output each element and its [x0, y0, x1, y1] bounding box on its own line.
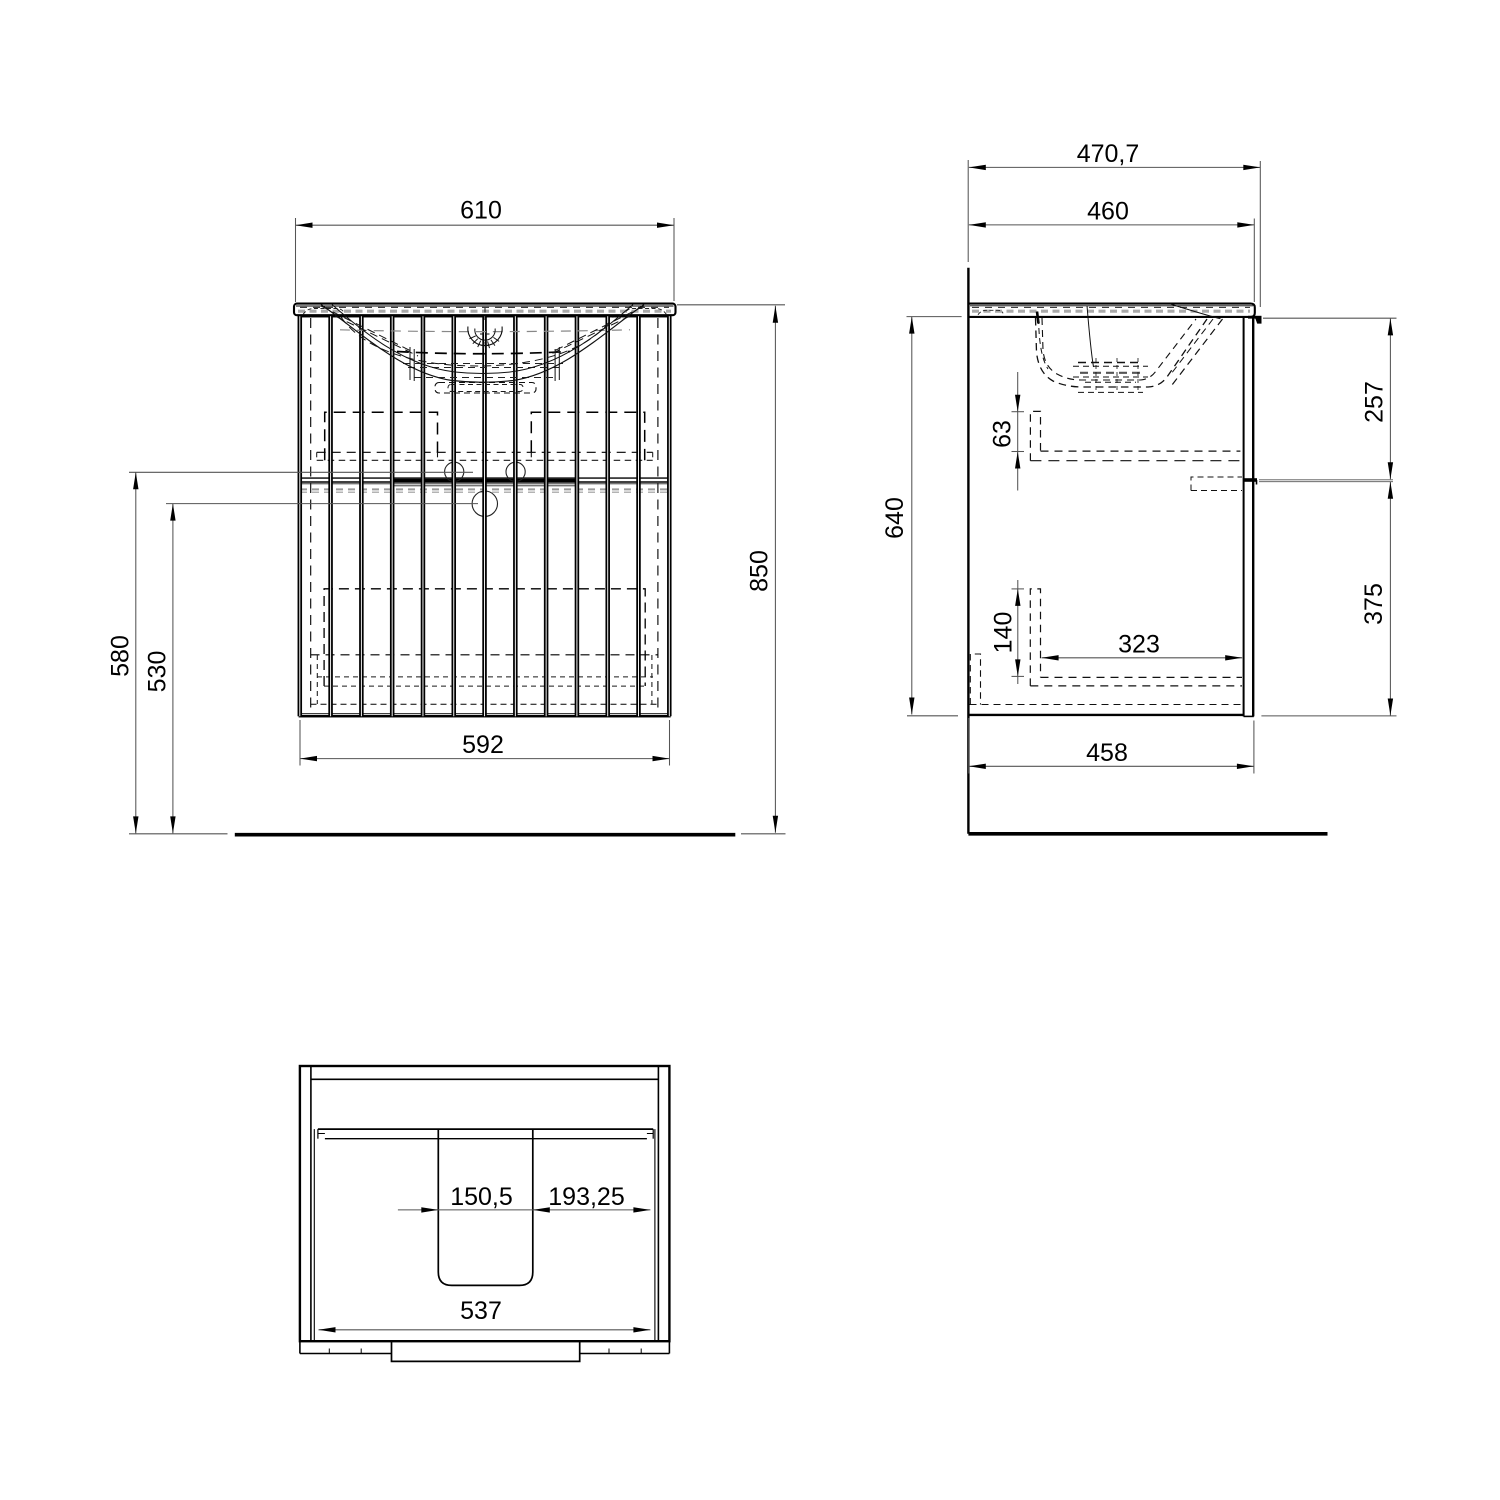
svg-text:640: 640 — [881, 497, 909, 539]
svg-text:193,25: 193,25 — [548, 1183, 624, 1211]
svg-text:530: 530 — [144, 651, 172, 693]
svg-text:140: 140 — [990, 612, 1018, 654]
svg-text:610: 610 — [460, 197, 502, 225]
svg-text:850: 850 — [745, 550, 773, 592]
svg-text:470,7: 470,7 — [1077, 140, 1140, 168]
svg-text:257: 257 — [1361, 381, 1389, 423]
svg-text:323: 323 — [1118, 630, 1160, 658]
svg-text:63: 63 — [988, 420, 1016, 448]
svg-text:150,5: 150,5 — [450, 1183, 513, 1211]
svg-text:375: 375 — [1360, 583, 1388, 625]
svg-text:592: 592 — [462, 731, 504, 759]
svg-text:460: 460 — [1087, 198, 1129, 226]
svg-text:537: 537 — [460, 1297, 502, 1325]
svg-text:580: 580 — [107, 635, 135, 677]
svg-text:458: 458 — [1086, 739, 1128, 767]
